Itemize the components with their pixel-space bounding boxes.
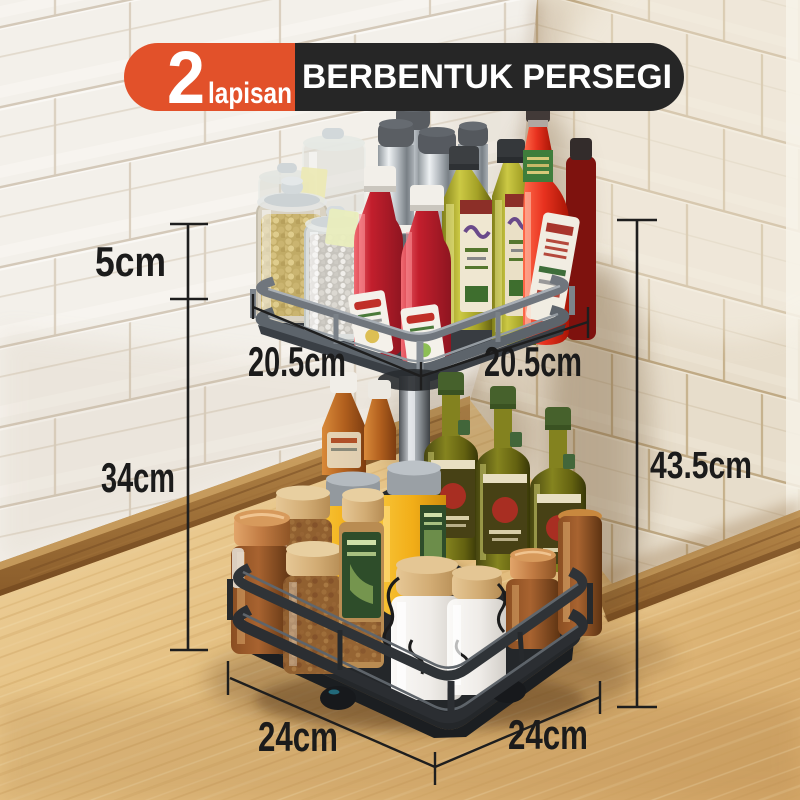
svg-text:5cm: 5cm: [95, 238, 166, 285]
svg-text:43.5cm: 43.5cm: [650, 445, 752, 487]
svg-text:BERBENTUK PERSEGI: BERBENTUK PERSEGI: [302, 58, 672, 96]
svg-text:lapisan: lapisan: [208, 77, 292, 110]
svg-text:20.5cm: 20.5cm: [484, 338, 582, 385]
svg-text:34cm: 34cm: [101, 454, 175, 501]
svg-text:20.5cm: 20.5cm: [248, 338, 346, 385]
svg-text:24cm: 24cm: [258, 713, 338, 760]
svg-text:24cm: 24cm: [508, 711, 588, 758]
svg-text:2: 2: [167, 36, 205, 119]
